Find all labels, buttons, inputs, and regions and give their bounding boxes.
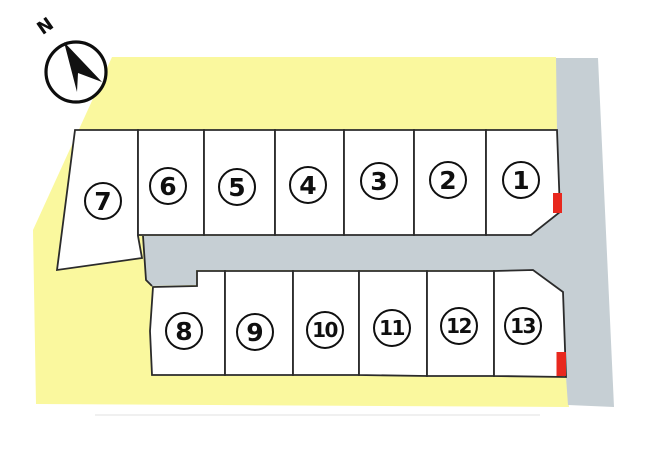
plot-badge-6[interactable]: 6 [149, 167, 187, 205]
plot-badge-8[interactable]: 8 [165, 312, 203, 350]
plot-badge-1[interactable]: 1 [502, 161, 540, 199]
lot-map-canvas [0, 0, 652, 460]
plot-badge-9[interactable]: 9 [236, 313, 274, 351]
red-marker-plot-13 [557, 352, 567, 376]
plot-badge-10[interactable]: 10 [306, 311, 344, 349]
plot-badge-5[interactable]: 5 [218, 168, 256, 206]
plot-badge-13[interactable]: 13 [504, 307, 542, 345]
plot-badge-11[interactable]: 11 [373, 309, 411, 347]
plot-badge-2[interactable]: 2 [429, 161, 467, 199]
plot-badge-3[interactable]: 3 [360, 162, 398, 200]
plot-badge-12[interactable]: 12 [440, 307, 478, 345]
artifact-smudge [95, 414, 540, 416]
plot-badge-7[interactable]: 7 [84, 182, 122, 220]
red-marker-plot-1 [553, 193, 562, 213]
plot-badge-4[interactable]: 4 [289, 166, 327, 204]
lot-map: N 7 6 5 4 3 2 1 8 9 10 11 12 13 [0, 0, 652, 460]
